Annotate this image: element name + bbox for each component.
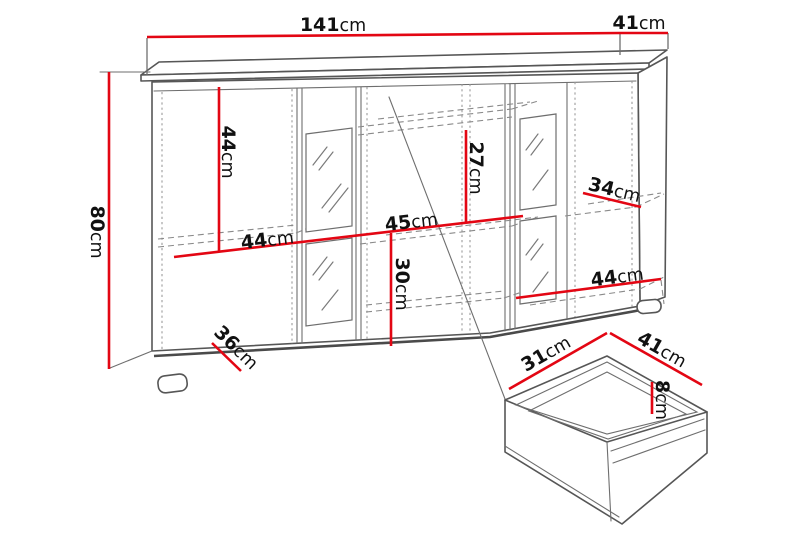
dim-line-width xyxy=(147,33,620,37)
drawer-drawing xyxy=(505,356,707,524)
dim-label-drawer-width: 41cm xyxy=(633,327,690,372)
dim-label-width: 141cm xyxy=(300,14,366,36)
dim-label-left-column-height: 44cm xyxy=(217,125,239,178)
dim-label-depth: 41cm xyxy=(612,12,665,34)
cabinet-foot-right xyxy=(637,299,662,314)
floor-extension-line xyxy=(110,351,152,368)
glass-panel-left-upper xyxy=(306,128,352,232)
dim-label-middle-upper-height: 27cm xyxy=(465,141,487,194)
dim-label-height: 80cm xyxy=(86,205,108,258)
diagram-canvas: 141cm 41cm 80cm 44cm 44cm 45cm 27cm 30cm… xyxy=(0,0,800,533)
glass-panel-left-lower xyxy=(306,238,352,326)
dim-label-drawer-front-height: 8cm xyxy=(651,380,673,420)
cabinet-drawing xyxy=(100,50,667,394)
dim-label-drawer-depth: 31cm xyxy=(518,331,575,376)
dim-label-middle-lower-height: 30cm xyxy=(391,257,413,310)
furniture-dimension-diagram: 141cm 41cm 80cm 44cm 44cm 45cm 27cm 30cm… xyxy=(0,0,800,533)
glass-panel-right-lower xyxy=(520,216,556,304)
glass-panel-right-upper xyxy=(520,114,556,210)
cabinet-foot-left xyxy=(157,373,188,393)
